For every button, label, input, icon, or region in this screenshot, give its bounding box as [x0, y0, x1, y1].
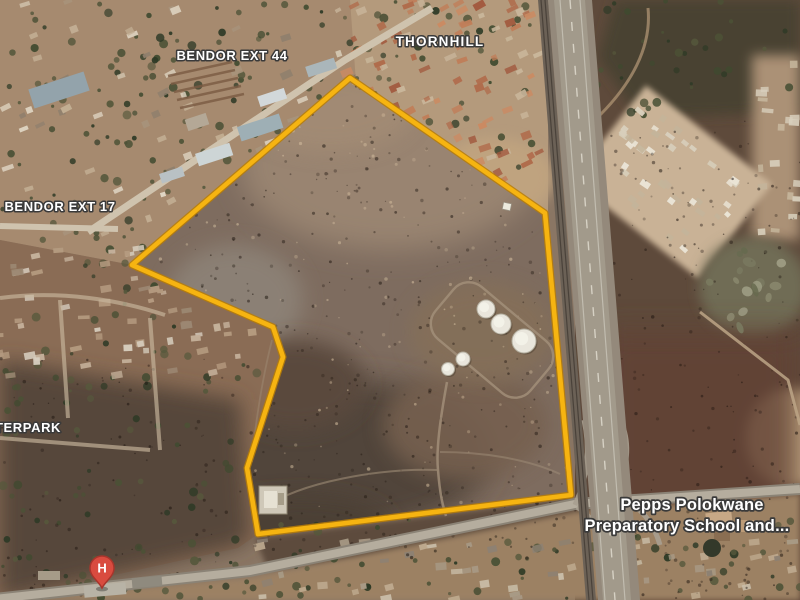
satellite-map-canvas[interactable]: BENDOR EXT 44 THORNHILL BENDOR EXT 17 TE…	[0, 0, 800, 600]
region-east-houses-strip	[752, 55, 800, 240]
hospital-pin-glyph: H	[97, 561, 106, 576]
label-bendor-ext-17[interactable]: BENDOR EXT 17	[4, 199, 115, 214]
label-sterpark[interactable]: TERPARK	[0, 420, 61, 435]
site-reservoir-compound	[259, 486, 287, 514]
label-thornhill[interactable]: THORNHILL	[396, 34, 485, 49]
label-school-line2[interactable]: Preparatory School and...	[585, 517, 790, 535]
label-bendor-ext-44[interactable]: BENDOR EXT 44	[176, 48, 287, 63]
road-bendor-west	[0, 226, 118, 229]
label-school-line1[interactable]: Pepps Polokwane	[620, 496, 763, 514]
map-viewport[interactable]: BENDOR EXT 44 THORNHILL BENDOR EXT 17 TE…	[0, 0, 800, 600]
site-small-structure	[502, 202, 511, 211]
